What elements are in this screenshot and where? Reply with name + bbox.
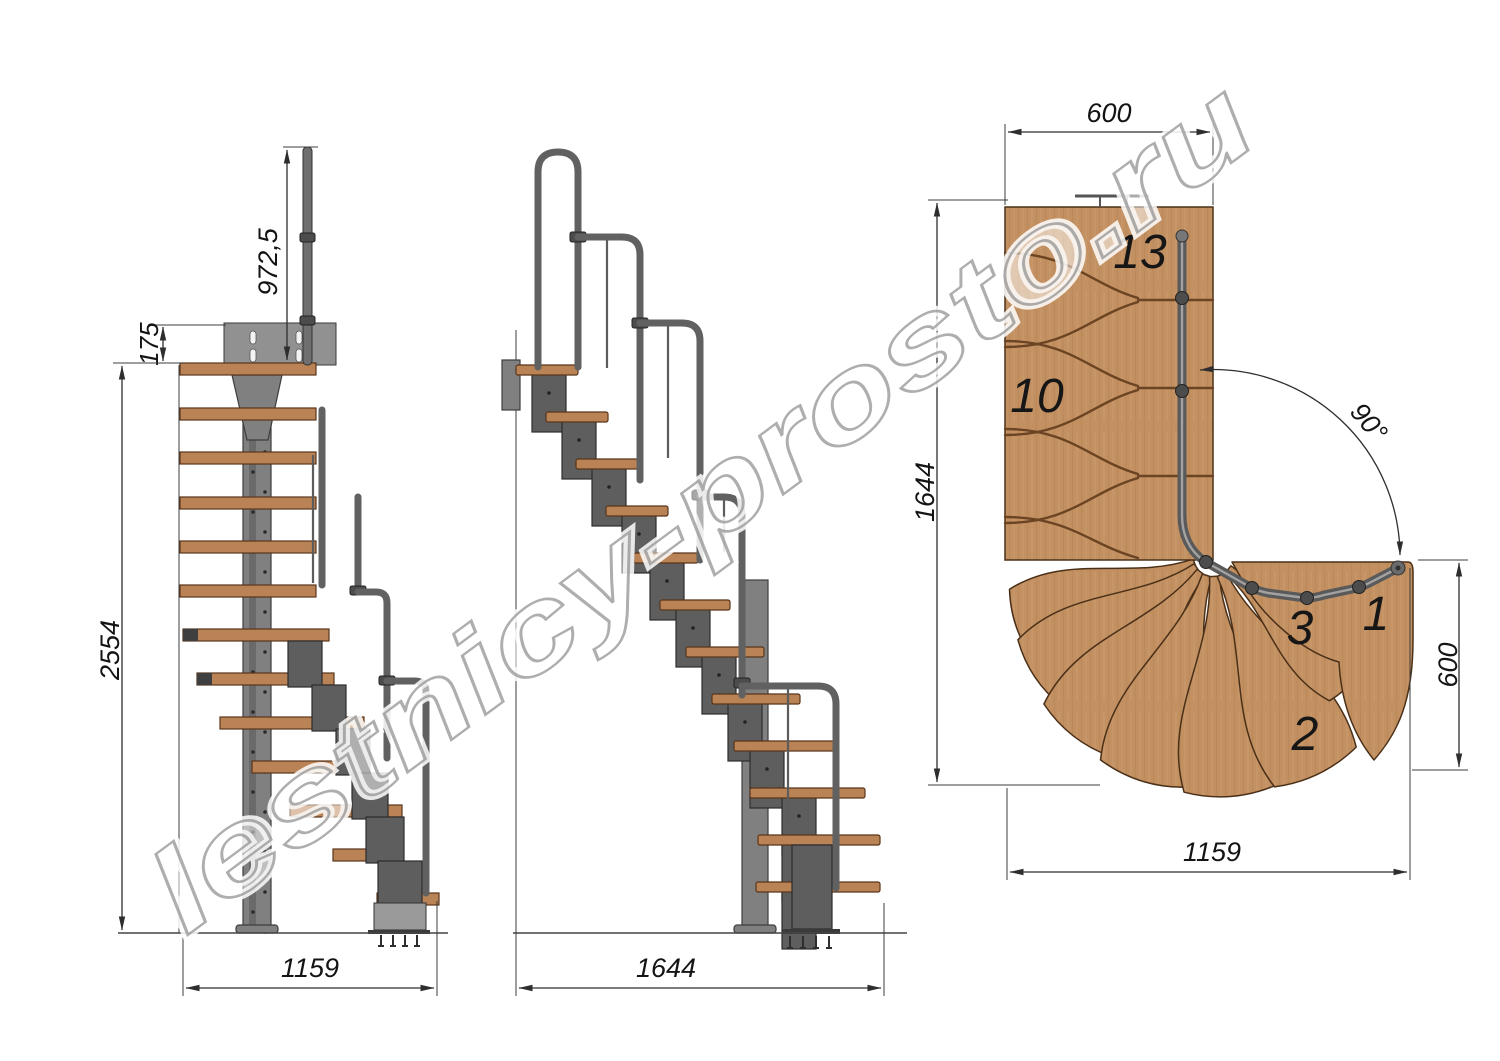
side-tread: [712, 694, 800, 704]
post-bolt: [263, 690, 267, 694]
front-mount-plate: [224, 323, 336, 365]
handrail-joint: [1246, 582, 1259, 595]
handrail-joint: [1200, 556, 1213, 569]
dim-plan-depth: 1644: [910, 462, 940, 522]
front-anchor-bolts: [378, 935, 420, 946]
front-handrail-post: [303, 147, 312, 365]
post-bolt: [263, 730, 267, 734]
plate-hole: [296, 331, 302, 344]
module-bolt: [607, 485, 611, 489]
side-tread: [576, 459, 638, 469]
plate-hole: [296, 349, 302, 362]
dim-handrail-height: 972,5: [253, 227, 283, 296]
post-bolt: [263, 610, 267, 614]
side-tread: [734, 741, 834, 751]
front-base-block: [374, 903, 426, 930]
dim-front-width: 1159: [281, 953, 339, 983]
module-bolt: [547, 391, 551, 395]
side-column-module: [532, 374, 566, 432]
dim-plan-right-width: 600: [1433, 642, 1463, 687]
side-tread: [686, 647, 764, 657]
drawing-canvas: 972,5 175 2554 1159: [0, 0, 1500, 1061]
staircase-drawing: 972,5 175 2554 1159: [0, 0, 1500, 1061]
tread-end-cap: [183, 629, 198, 641]
side-base-column: [792, 845, 832, 929]
post-bolt: [251, 750, 255, 754]
module-bolt: [577, 438, 581, 442]
side-tread: [516, 365, 578, 375]
post-bolt: [263, 650, 267, 654]
handrail-joint: [1176, 292, 1189, 305]
side-tread: [758, 835, 880, 845]
post-bolt: [263, 570, 267, 574]
module-bolt: [717, 673, 721, 677]
front-post-flange: [236, 925, 278, 933]
handrail-end-cap-center: [1396, 566, 1401, 571]
dim-plate-height: 175: [134, 322, 164, 366]
side-column-module: [562, 421, 596, 479]
side-tread: [750, 788, 865, 798]
post-bolt: [263, 490, 267, 494]
module-bolt: [691, 626, 695, 630]
dim-side-length: 1644: [636, 953, 696, 983]
post-bolt: [251, 710, 255, 714]
dim-plan-bottom-width: 1159: [1183, 837, 1241, 867]
tread-end-cap: [197, 673, 212, 685]
post-bolt: [251, 470, 255, 474]
plate-hole: [250, 331, 256, 344]
step-label-10: 10: [1010, 370, 1064, 423]
module-bolt: [765, 767, 769, 771]
post-bolt: [251, 510, 255, 514]
post-bolt: [263, 530, 267, 534]
step-label-1: 1: [1363, 588, 1390, 641]
side-post-flange: [734, 925, 776, 933]
dim-total-height: 2554: [95, 620, 125, 681]
side-column-module: [750, 750, 784, 808]
handrail-joint: [1176, 385, 1189, 398]
step-label-2: 2: [1291, 708, 1319, 761]
module-bolt: [797, 814, 801, 818]
side-tread: [546, 412, 608, 422]
dim-turn-angle: 90°: [1344, 397, 1393, 448]
module-bolt: [743, 720, 747, 724]
step-label-3: 3: [1287, 602, 1314, 655]
plate-hole: [250, 349, 256, 362]
